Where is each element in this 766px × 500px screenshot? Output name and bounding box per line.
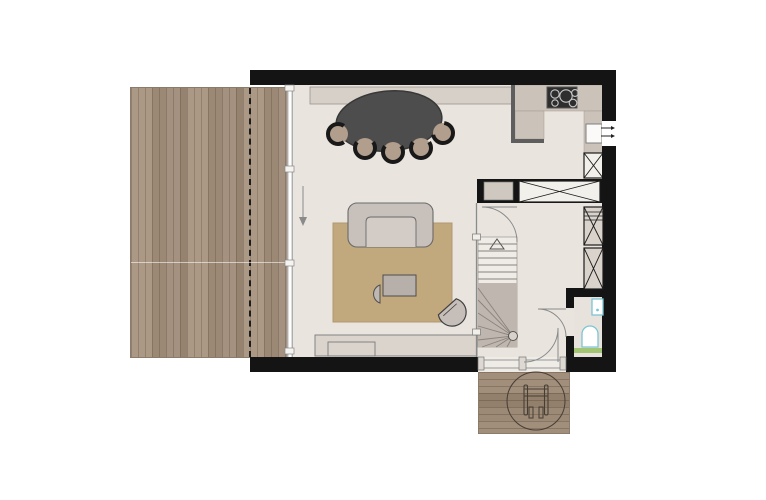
newel-post [509, 332, 518, 341]
coffee-table [383, 275, 416, 296]
mullion-block [285, 348, 294, 354]
dining-chair [411, 138, 431, 158]
sofa [348, 203, 433, 247]
wall-right [602, 70, 616, 372]
floor-plan-drawing [0, 0, 766, 500]
door-frame-block [560, 357, 566, 370]
mullion-block [285, 85, 294, 91]
dining-chair [328, 124, 348, 144]
cooktop-icon [547, 87, 578, 108]
dining-chair [383, 142, 403, 162]
wall-window-notch [602, 121, 616, 146]
door-frame-block [478, 357, 484, 370]
floor-plan-canvas [0, 0, 766, 500]
shower-mat-strip [574, 348, 602, 353]
kitchen-peninsula [515, 111, 544, 139]
wall-bottom-right [566, 357, 616, 372]
dining-chair [355, 138, 375, 158]
door-frame-block [519, 357, 526, 370]
basin-drain [596, 309, 599, 312]
partition-frame-block [473, 234, 481, 240]
footrest [529, 407, 533, 418]
counter-edge-vertical [511, 85, 515, 143]
wc-room [574, 297, 603, 357]
wardrobe-x-icon [519, 181, 600, 202]
partition-frame-block [473, 329, 481, 335]
mullion-block [285, 166, 294, 172]
dining-chair [433, 123, 453, 143]
wall-wc-left-lower [566, 336, 574, 357]
toilet-icon [582, 326, 598, 347]
interior-doorway [484, 182, 513, 200]
mullion-block [285, 260, 294, 266]
wall-top [250, 70, 616, 85]
wash-basin-icon [592, 299, 603, 315]
counter-edge-horizontal [511, 139, 544, 143]
kitchen-tall-cabinet-x-icon [584, 153, 603, 178]
kitchen-sink-icon [586, 124, 602, 143]
hall-cabinet-x-icon [584, 248, 603, 289]
hall-cabinet-x-icon [584, 207, 603, 245]
tv-cabinet [315, 335, 477, 356]
wall-bottom-left [250, 357, 478, 372]
wheelchair-turning-circle-icon [507, 372, 565, 430]
footrest [539, 407, 543, 418]
entrance-doorway [478, 357, 566, 372]
wall-wc-left-upper [566, 288, 574, 308]
